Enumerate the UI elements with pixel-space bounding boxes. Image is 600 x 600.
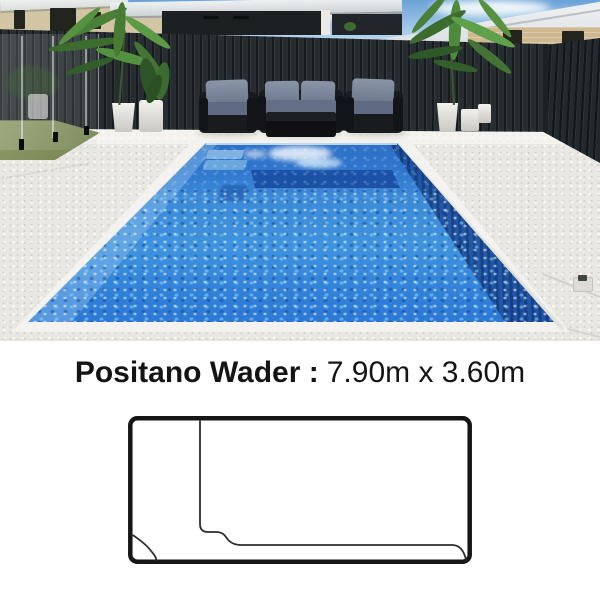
plant-pot [111, 103, 136, 132]
plant-pot [478, 104, 491, 123]
shrub [344, 22, 356, 31]
product-card: Positano Wader :7.90m x 3.60m [0, 0, 600, 600]
plant-pot [139, 100, 163, 132]
skimmer-cap [578, 275, 587, 281]
garage-opening [332, 14, 402, 35]
waterline-highlight [206, 143, 397, 145]
armchair-left-seat-cushion [205, 102, 251, 115]
window [14, 10, 25, 29]
glass-reflection-pot [28, 94, 48, 119]
ceiling-fan-icon [203, 16, 219, 19]
pool-plan-diagram [128, 414, 472, 568]
glass-spigot [84, 126, 89, 135]
loveseat-armrest [336, 96, 345, 130]
ottoman-top [266, 112, 336, 121]
armchair-right-seat-cushion [351, 101, 398, 114]
armchair-left-armrest [247, 98, 257, 131]
plant-pot [461, 109, 479, 131]
product-title: Positano Wader :7.90m x 3.60m [0, 352, 600, 394]
product-dimensions: 7.90m x 3.60m [327, 356, 525, 389]
armchair-left-armrest [199, 98, 208, 131]
glass-spigot [53, 132, 58, 142]
plant-pot [436, 103, 459, 132]
glass-spigot [19, 139, 24, 150]
glass-panel-edge [85, 36, 87, 131]
pool-outline [130, 418, 469, 561]
fence-corner-post [543, 44, 548, 132]
pool-cleaner-dot [457, 245, 461, 248]
armchair-right-armrest [345, 97, 354, 131]
glass-panel-edge [21, 36, 23, 144]
ceiling-fan-icon [233, 16, 249, 19]
patio-post [321, 10, 330, 35]
loveseat-armrest [257, 96, 266, 130]
patio-interior [162, 11, 327, 35]
pool-photo [0, 0, 600, 341]
armchair-right-armrest [393, 97, 403, 131]
product-name: Positano Wader : [75, 356, 319, 389]
pool-plan-svg [128, 414, 472, 568]
